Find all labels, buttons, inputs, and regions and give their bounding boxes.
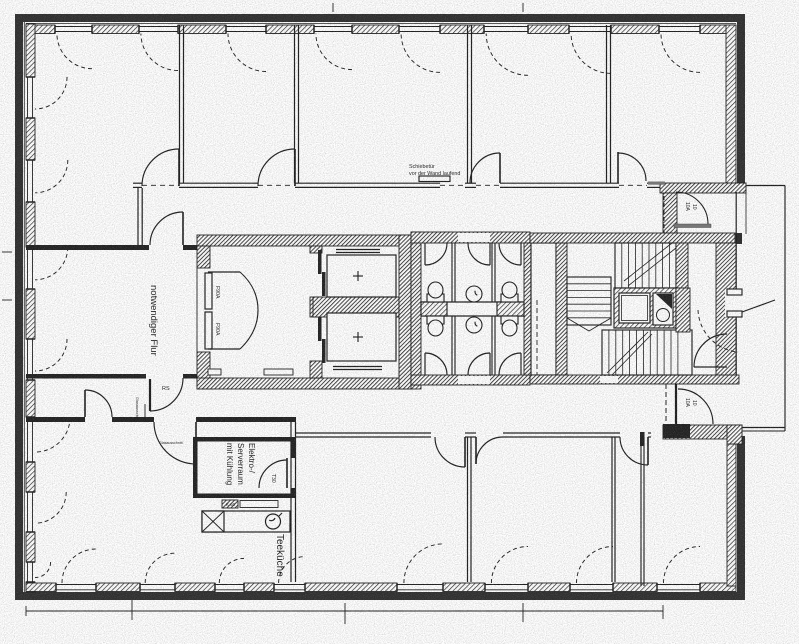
svg-text:10: 10 — [691, 204, 697, 210]
svg-text:T30: T30 — [270, 474, 276, 483]
svg-text:F90A: F90A — [214, 286, 220, 299]
svg-text:10A: 10A — [684, 398, 690, 408]
svg-text:notwendiger Flur: notwendiger Flur — [148, 285, 159, 356]
svg-text:10: 10 — [691, 400, 697, 406]
svg-text:K 60: K 60 — [226, 502, 236, 507]
svg-text:Glasausschnitt: Glasausschnitt — [135, 397, 139, 423]
svg-text:vor der Wand laufend: vor der Wand laufend — [409, 171, 460, 177]
svg-text:RS: RS — [162, 386, 170, 392]
svg-text:Elektro-/: Elektro-/ — [247, 443, 256, 474]
svg-text:mit Kühlung: mit Kühlung — [225, 443, 234, 485]
svg-text:Schiebetür: Schiebetür — [409, 164, 435, 170]
svg-text:10A: 10A — [684, 202, 690, 212]
svg-text:F90A: F90A — [214, 323, 220, 336]
svg-text:Teeküche: Teeküche — [274, 534, 285, 577]
svg-text:Glasausschnitt: Glasausschnitt — [159, 441, 183, 445]
svg-text:Serverraum: Serverraum — [236, 443, 245, 485]
